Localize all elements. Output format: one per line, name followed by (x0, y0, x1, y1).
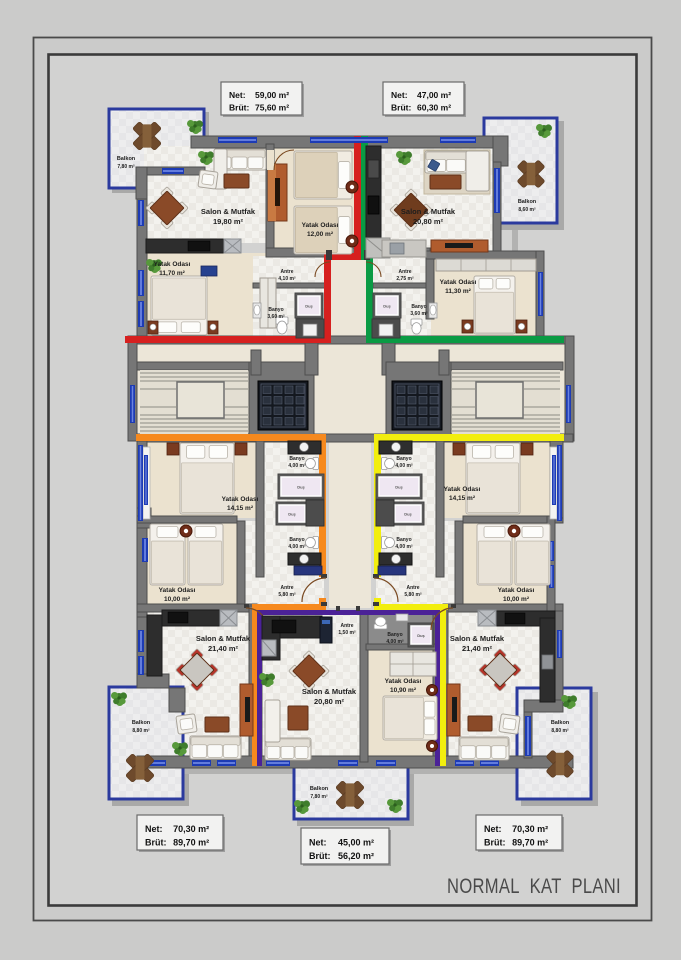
svg-text:Banyo: Banyo (268, 307, 283, 313)
svg-text:5,80 m²: 5,80 m² (404, 592, 422, 598)
svg-text:Yatak Odası: Yatak Odası (444, 486, 481, 493)
svg-text:10,90 m²: 10,90 m² (390, 687, 417, 694)
svg-text:20,80 m²: 20,80 m² (413, 217, 444, 226)
svg-text:75,60 m²: 75,60 m² (255, 103, 289, 113)
svg-text:70,30 m²: 70,30 m² (173, 824, 209, 834)
svg-text:14,15 m²: 14,15 m² (449, 495, 476, 502)
svg-text:14,15 m²: 14,15 m² (227, 505, 254, 512)
svg-text:21,40 m²: 21,40 m² (208, 644, 239, 653)
svg-text:Balkon: Balkon (132, 720, 151, 726)
svg-text:Brüt:: Brüt: (229, 103, 249, 113)
svg-text:Salon & Mutfak: Salon & Mutfak (196, 634, 251, 643)
svg-text:Banyo: Banyo (387, 632, 402, 638)
svg-text:11,70 m²: 11,70 m² (159, 270, 185, 277)
svg-text:Antre: Antre (280, 269, 293, 275)
svg-text:47,00 m²: 47,00 m² (417, 90, 451, 100)
svg-text:Salon & Mutfak: Salon & Mutfak (450, 634, 505, 643)
svg-text:4,00 m²: 4,00 m² (288, 463, 306, 469)
svg-text:20,80 m²: 20,80 m² (314, 697, 345, 706)
svg-text:3,60 m²: 3,60 m² (410, 311, 428, 317)
svg-text:Yatak Odası: Yatak Odası (154, 261, 191, 268)
svg-text:Banyo: Banyo (396, 537, 411, 543)
svg-text:7,80 m²: 7,80 m² (117, 164, 135, 170)
svg-text:Antre: Antre (398, 269, 411, 275)
svg-text:4,00 m²: 4,00 m² (395, 463, 413, 469)
svg-text:Duş: Duş (297, 485, 305, 490)
svg-text:Yatak Odası: Yatak Odası (302, 222, 339, 229)
svg-text:56,20 m²: 56,20 m² (338, 851, 374, 861)
svg-text:4,00 m²: 4,00 m² (288, 544, 306, 550)
svg-text:Salon & Mutfak: Salon & Mutfak (302, 687, 357, 696)
svg-text:8,60 m²: 8,60 m² (518, 207, 536, 213)
svg-text:Banyo: Banyo (289, 537, 304, 543)
svg-text:Antre: Antre (280, 585, 293, 591)
svg-text:4,10 m²: 4,10 m² (278, 276, 296, 282)
svg-text:10,00 m²: 10,00 m² (164, 596, 191, 603)
svg-text:Yatak Odası: Yatak Odası (498, 587, 535, 594)
svg-text:7,80 m²: 7,80 m² (310, 794, 328, 800)
svg-text:45,00 m²: 45,00 m² (338, 837, 374, 847)
svg-text:Balkon: Balkon (117, 156, 136, 162)
svg-text:Brüt:: Brüt: (391, 103, 411, 113)
svg-text:11,30 m²: 11,30 m² (445, 288, 471, 295)
svg-text:Balkon: Balkon (518, 199, 537, 205)
svg-text:4,00 m²: 4,00 m² (395, 544, 413, 550)
svg-text:Balkon: Balkon (310, 786, 329, 792)
svg-text:59,00 m²: 59,00 m² (255, 90, 289, 100)
svg-text:NORMAL KAT PLANI: NORMAL KAT PLANI (447, 875, 621, 898)
svg-text:Yatak Odası: Yatak Odası (222, 496, 259, 503)
svg-text:Antre: Antre (406, 585, 419, 591)
svg-text:Duş: Duş (383, 304, 391, 309)
svg-text:Duş: Duş (417, 633, 425, 638)
svg-text:5,80 m²: 5,80 m² (278, 592, 296, 598)
svg-text:Net:: Net: (391, 90, 408, 100)
svg-text:Banyo: Banyo (411, 304, 426, 310)
svg-text:3,60 m²: 3,60 m² (267, 314, 285, 320)
svg-text:70,30 m²: 70,30 m² (512, 824, 548, 834)
svg-text:89,70 m²: 89,70 m² (512, 837, 548, 847)
svg-text:21,40 m²: 21,40 m² (462, 644, 493, 653)
svg-text:Yatak Odası: Yatak Odası (440, 279, 477, 286)
svg-text:Balkon: Balkon (551, 720, 570, 726)
svg-text:Duş: Duş (288, 512, 296, 517)
svg-text:60,30 m²: 60,30 m² (417, 103, 451, 113)
svg-text:Brüt:: Brüt: (145, 837, 167, 847)
svg-text:Net:: Net: (229, 90, 246, 100)
svg-text:Net:: Net: (309, 837, 327, 847)
svg-text:19,80 m²: 19,80 m² (213, 217, 244, 226)
svg-text:Antre: Antre (340, 623, 353, 629)
svg-text:8,80 m²: 8,80 m² (551, 728, 569, 734)
svg-text:Brüt:: Brüt: (484, 837, 506, 847)
svg-text:Net:: Net: (145, 824, 163, 834)
svg-text:4,00 m²: 4,00 m² (386, 639, 404, 645)
svg-text:Duş: Duş (395, 485, 403, 490)
svg-text:Banyo: Banyo (289, 456, 304, 462)
svg-text:2,75 m²: 2,75 m² (396, 276, 414, 282)
svg-text:Salon & Mutfak: Salon & Mutfak (201, 207, 256, 216)
svg-text:10,00 m²: 10,00 m² (503, 596, 530, 603)
svg-text:12,00 m²: 12,00 m² (307, 231, 334, 238)
svg-text:Brüt:: Brüt: (309, 851, 331, 861)
svg-text:Duş: Duş (404, 512, 412, 517)
svg-text:Yatak Odası: Yatak Odası (159, 587, 196, 594)
svg-text:Duş: Duş (305, 304, 313, 309)
svg-text:Net:: Net: (484, 824, 502, 834)
svg-text:Salon & Mutfak: Salon & Mutfak (401, 207, 456, 216)
svg-text:8,80 m²: 8,80 m² (132, 728, 150, 734)
svg-text:Banyo: Banyo (396, 456, 411, 462)
svg-text:Yatak Odası: Yatak Odası (385, 678, 422, 685)
svg-text:89,70 m²: 89,70 m² (173, 837, 209, 847)
svg-text:1,50 m²: 1,50 m² (338, 630, 356, 636)
